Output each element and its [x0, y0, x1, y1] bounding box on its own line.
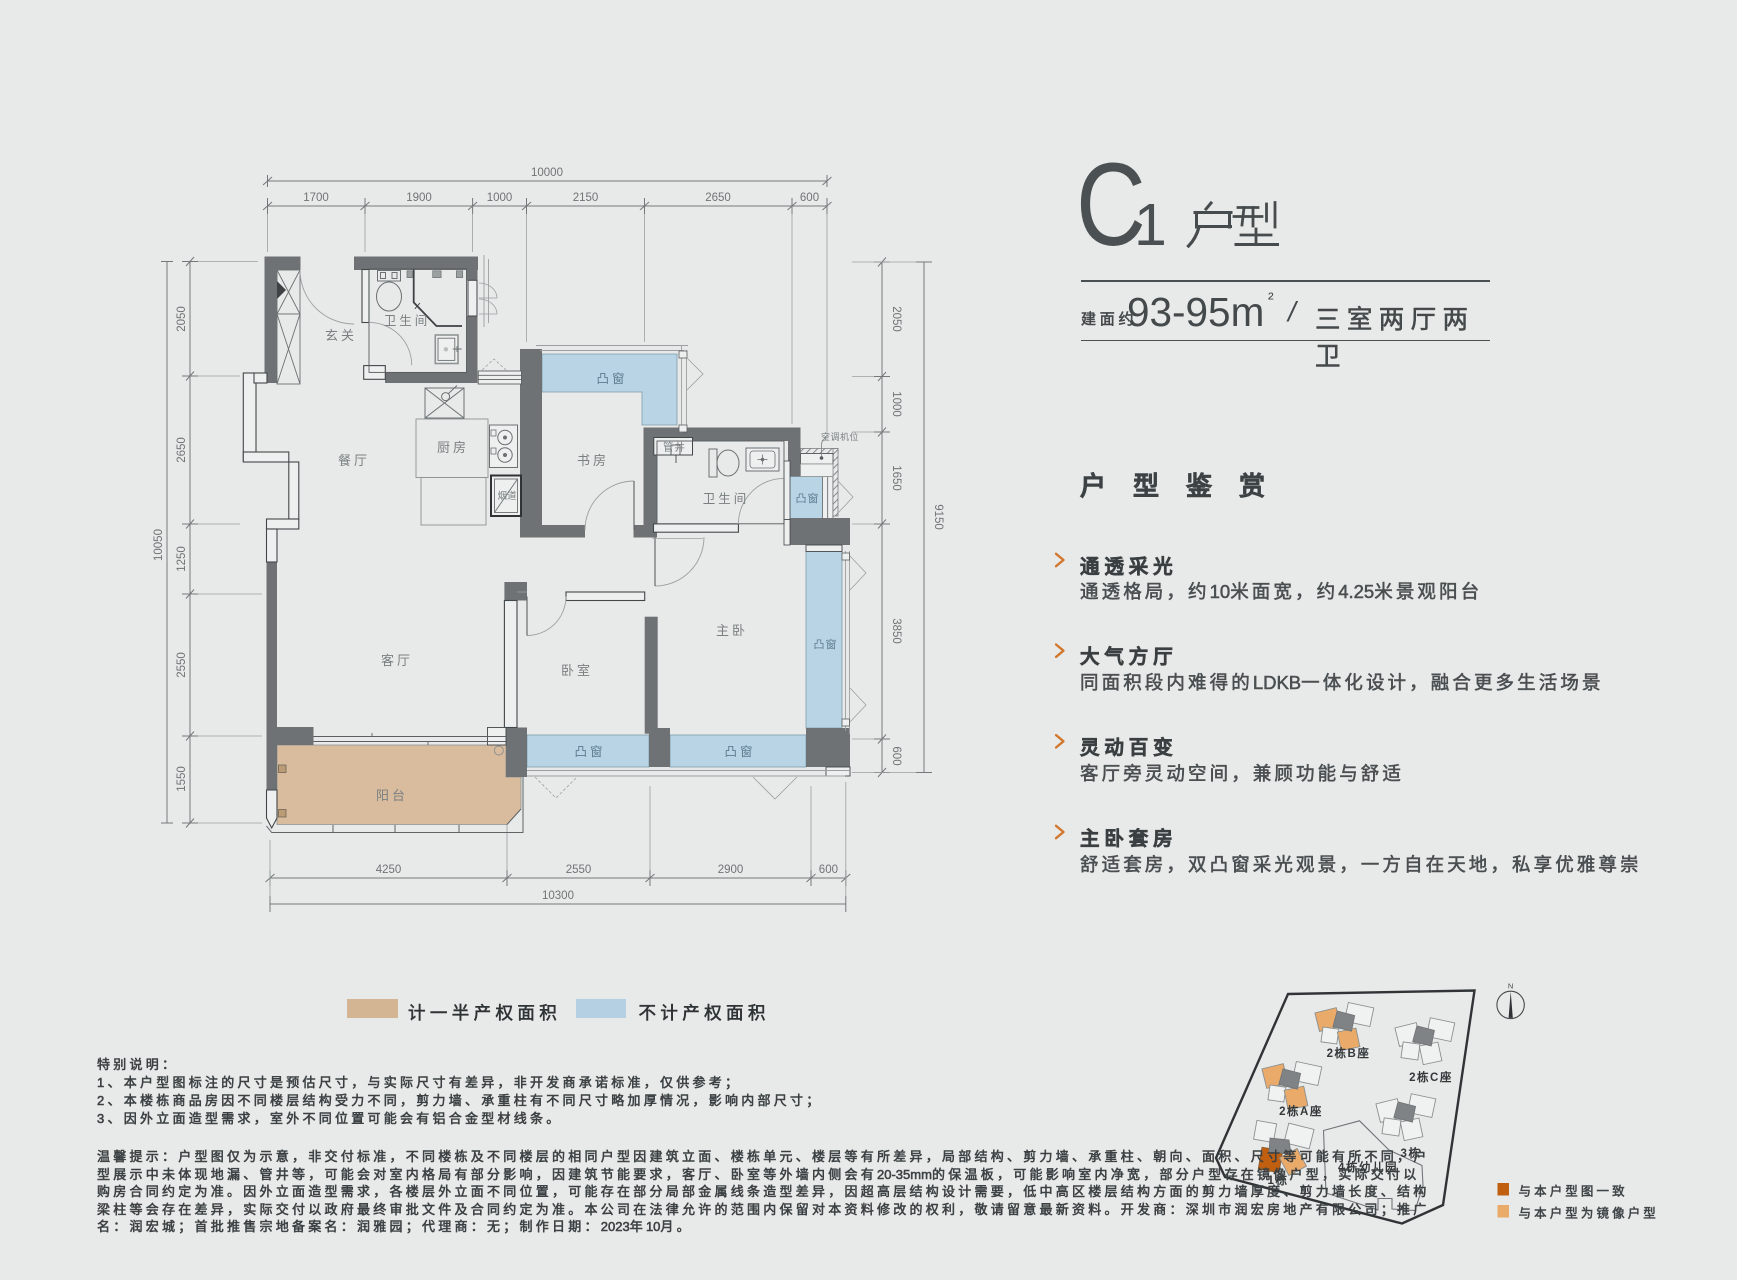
svg-text:2栋B座: 2栋B座: [1327, 1046, 1371, 1060]
svg-text:与本户型图一致: 与本户型图一致: [1519, 1184, 1628, 1199]
svg-text:10300: 10300: [542, 890, 574, 902]
svg-text:2050: 2050: [890, 306, 902, 332]
svg-text:凸窗: 凸窗: [814, 637, 838, 651]
svg-text:600: 600: [819, 864, 838, 876]
svg-text:2050: 2050: [176, 306, 188, 332]
svg-text:2650: 2650: [176, 437, 188, 463]
svg-text:2900: 2900: [718, 864, 744, 876]
svg-text:2650: 2650: [705, 192, 731, 204]
svg-text:书房: 书房: [577, 453, 609, 468]
svg-text:凸窗: 凸窗: [596, 372, 627, 386]
svg-text:600: 600: [890, 746, 902, 765]
svg-text:1700: 1700: [303, 192, 329, 204]
svg-text:2150: 2150: [573, 192, 599, 204]
svg-text:600: 600: [800, 192, 819, 204]
svg-text:凸窗: 凸窗: [724, 745, 755, 759]
svg-text:卧室: 卧室: [561, 663, 593, 678]
svg-text:空调机位: 空调机位: [821, 431, 859, 442]
svg-text:1550: 1550: [176, 766, 188, 792]
svg-text:凸窗: 凸窗: [574, 745, 605, 759]
svg-text:餐厅: 餐厅: [338, 453, 370, 468]
svg-text:烟道: 烟道: [497, 490, 517, 502]
svg-text:1650: 1650: [890, 465, 902, 491]
svg-text:3850: 3850: [890, 618, 902, 644]
svg-text:9150: 9150: [932, 504, 944, 530]
svg-text:玄关: 玄关: [325, 328, 357, 343]
svg-text:1000: 1000: [487, 192, 513, 204]
svg-text:N: N: [1508, 982, 1513, 991]
svg-text:厨房: 厨房: [437, 440, 469, 455]
svg-text:卫生间: 卫生间: [384, 314, 431, 328]
svg-text:凸窗: 凸窗: [796, 491, 820, 505]
svg-text:卫生间: 卫生间: [703, 492, 750, 506]
svg-text:1250: 1250: [176, 546, 188, 572]
svg-text:主卧: 主卧: [716, 623, 748, 638]
svg-text:2栋A座: 2栋A座: [1279, 1104, 1323, 1118]
svg-text:与本户型为镜像户型: 与本户型为镜像户型: [1519, 1206, 1659, 1221]
svg-text:1000: 1000: [890, 391, 902, 417]
svg-text:1900: 1900: [406, 192, 432, 204]
svg-text:2栋C座: 2栋C座: [1409, 1070, 1453, 1084]
svg-text:2550: 2550: [176, 652, 188, 678]
svg-text:客厅: 客厅: [381, 653, 413, 668]
svg-text:4250: 4250: [376, 864, 402, 876]
svg-text:管井: 管井: [663, 441, 686, 454]
svg-text:10050: 10050: [153, 529, 165, 561]
svg-text:2550: 2550: [566, 864, 592, 876]
svg-text:阳台: 阳台: [376, 788, 408, 803]
svg-text:10000: 10000: [531, 167, 563, 179]
